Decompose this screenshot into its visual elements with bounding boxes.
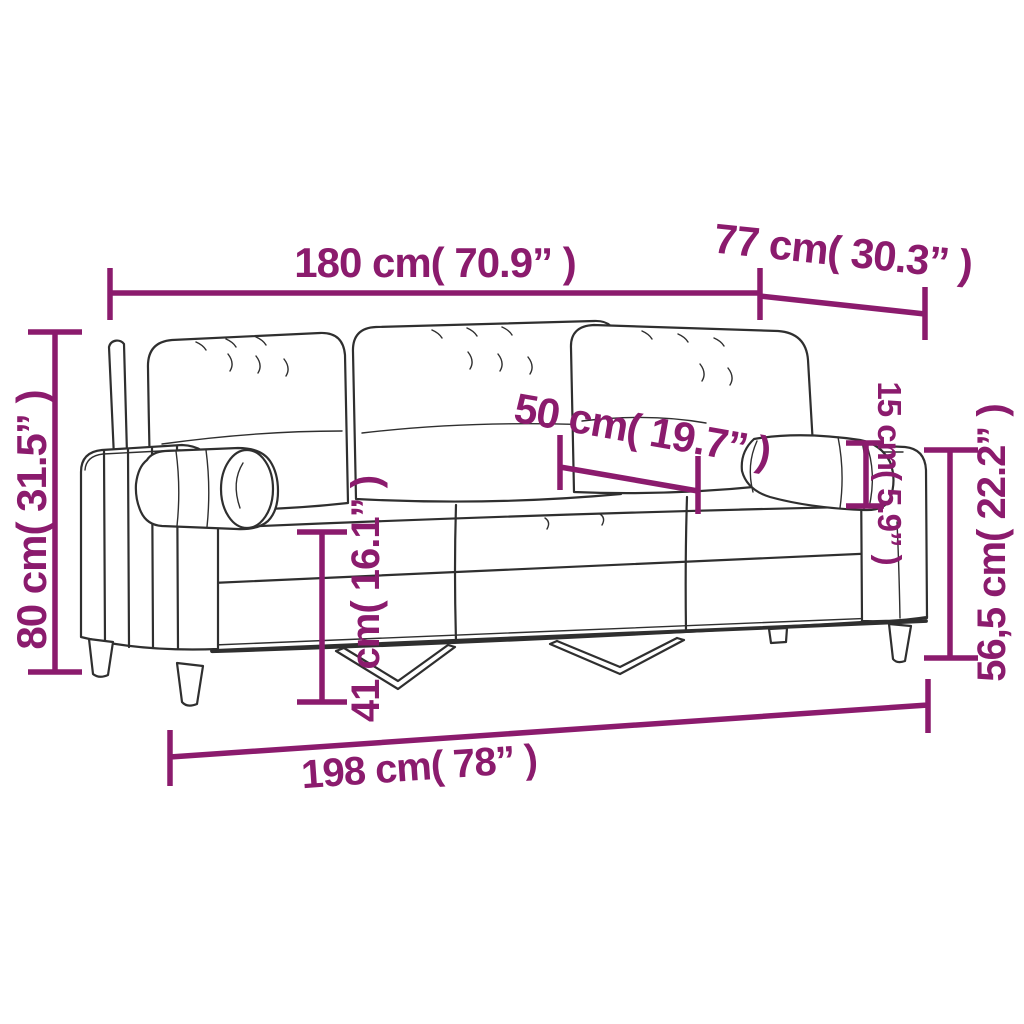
diagram-svg: 180 cm( 70.9” ) 77 cm( 30.3” ) 80 cm( 31… [0,0,1024,1024]
dimension-back-width: 180 cm( 70.9” ) [110,239,760,320]
block-leg [769,628,787,643]
dimension-arm-height: 56,5 cm( 22.2” ) [924,404,1014,682]
dimension-depth: 77 cm( 30.3” ) [712,215,975,340]
arm-height-label: 56,5 cm( 22.2” ) [970,404,1014,682]
tapered-leg [889,624,911,662]
sofa-dimension-diagram: 180 cm( 70.9” ) 77 cm( 30.3” ) 80 cm( 31… [0,0,1024,1024]
tapered-leg [89,639,113,677]
sofa-line-art [81,321,927,706]
back-frame-post [109,341,127,457]
dimension-total-width: 198 cm( 78” ) [170,679,928,797]
back-height-label: 80 cm( 31.5” ) [8,390,55,649]
seat-height-label: 41 cm( 16.1” ) [344,476,388,722]
dimension-back-height: 80 cm( 31.5” ) [8,332,82,672]
metal-sled-leg [550,638,684,674]
tapered-leg [177,663,203,706]
depth-label: 77 cm( 30.3” ) [712,215,975,289]
back-width-label: 180 cm( 70.9” ) [294,239,576,286]
pillow-diameter-label: 15 cm( 5.9” ) [871,381,908,564]
